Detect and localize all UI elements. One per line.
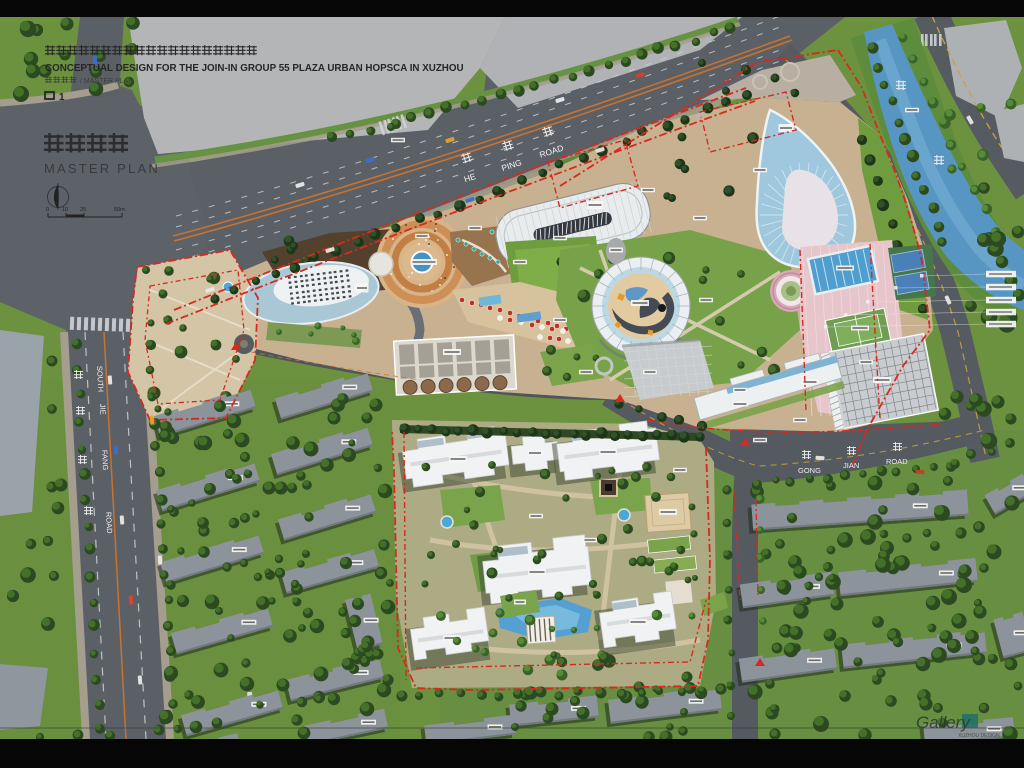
svg-text:ROAD: ROAD bbox=[886, 457, 908, 466]
svg-text:JIAN: JIAN bbox=[843, 461, 859, 470]
svg-text:JIE: JIE bbox=[98, 404, 108, 415]
svg-text:FANG: FANG bbox=[100, 450, 110, 471]
svg-text:10: 10 bbox=[62, 207, 68, 213]
svg-text:SOUTH: SOUTH bbox=[95, 366, 105, 393]
svg-text:0: 0 bbox=[46, 207, 49, 213]
svg-text:Gallery: Gallery bbox=[916, 713, 971, 732]
svg-text:XUZHOU DESIGN: XUZHOU DESIGN bbox=[958, 733, 1000, 739]
svg-text:ROAD: ROAD bbox=[104, 512, 114, 535]
svg-text:50m: 50m bbox=[114, 207, 125, 213]
svg-text:25: 25 bbox=[80, 207, 86, 213]
svg-text:CONCEPTUAL DESIGN FOR THE JOIN: CONCEPTUAL DESIGN FOR THE JOIN-IN GROUP … bbox=[45, 63, 464, 74]
svg-text:GONG: GONG bbox=[798, 466, 821, 475]
svg-text:1: 1 bbox=[59, 92, 65, 103]
svg-text:/ MASTER PLAN: / MASTER PLAN bbox=[80, 78, 133, 85]
svg-text:MASTER PLAN: MASTER PLAN bbox=[44, 161, 160, 176]
